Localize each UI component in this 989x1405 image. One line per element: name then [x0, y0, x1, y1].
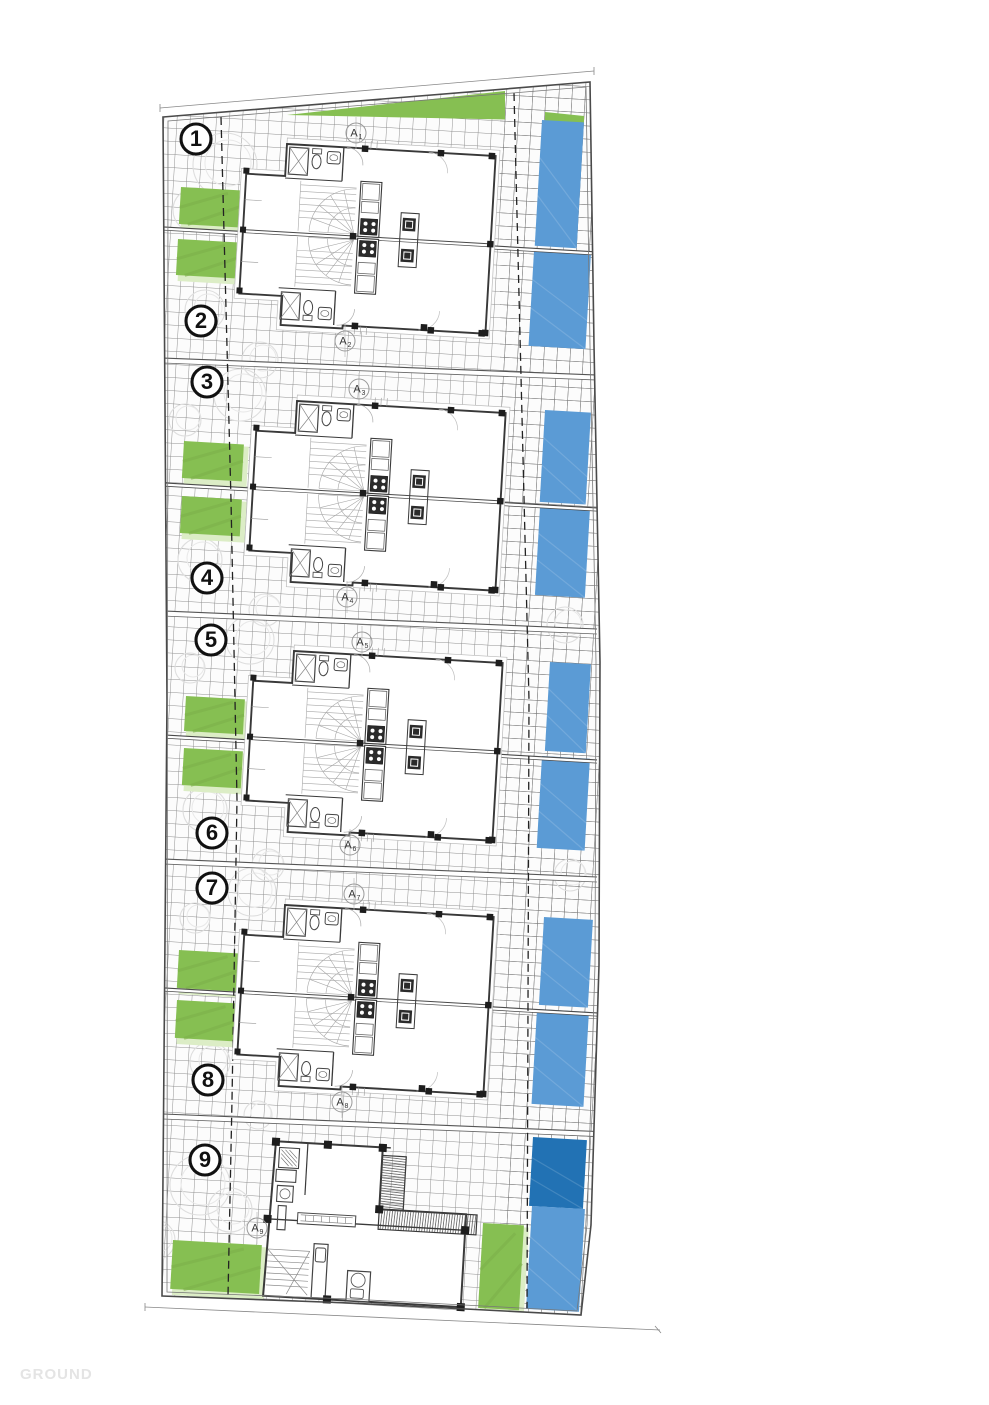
- svg-text:2: 2: [348, 342, 352, 349]
- svg-text:6: 6: [206, 820, 218, 845]
- svg-text:2: 2: [195, 308, 207, 333]
- svg-text:4: 4: [350, 598, 354, 605]
- svg-text:A: A: [348, 889, 356, 901]
- svg-text:4: 4: [201, 565, 214, 590]
- svg-text:7: 7: [357, 895, 361, 902]
- svg-text:9: 9: [199, 1147, 211, 1172]
- svg-text:7: 7: [206, 875, 218, 900]
- svg-text:A: A: [339, 336, 347, 348]
- svg-text:1: 1: [190, 126, 202, 151]
- svg-text:A: A: [336, 1097, 344, 1109]
- svg-text:A: A: [356, 637, 364, 649]
- svg-text:9: 9: [260, 1229, 264, 1236]
- svg-text:3: 3: [362, 390, 366, 397]
- svg-text:A: A: [350, 128, 358, 140]
- svg-text:3: 3: [201, 369, 213, 394]
- svg-text:5: 5: [205, 627, 217, 652]
- svg-text:GROUND: GROUND: [20, 1366, 93, 1383]
- svg-text:1: 1: [359, 134, 363, 141]
- svg-text:A: A: [353, 384, 361, 396]
- svg-text:6: 6: [353, 846, 357, 853]
- svg-text:A: A: [251, 1223, 259, 1235]
- svg-text:5: 5: [365, 643, 369, 650]
- svg-text:8: 8: [345, 1103, 349, 1110]
- svg-text:A: A: [344, 840, 352, 852]
- svg-text:A: A: [341, 592, 349, 604]
- svg-text:8: 8: [202, 1067, 214, 1092]
